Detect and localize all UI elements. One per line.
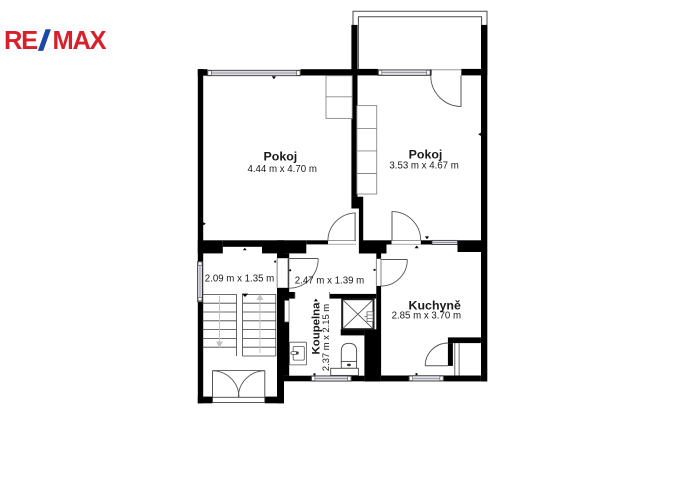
svg-text:Pokoj: Pokoj (264, 150, 298, 164)
svg-text:2.47 m x 1.39 m: 2.47 m x 1.39 m (295, 276, 364, 287)
svg-text:4.44 m x 4.70 m: 4.44 m x 4.70 m (247, 164, 316, 175)
svg-text:Pokoj: Pokoj (409, 147, 443, 161)
svg-text:2.85 m x 3.70 m: 2.85 m x 3.70 m (392, 311, 461, 322)
svg-text:MAX: MAX (53, 27, 107, 55)
svg-text:2.09 m x 1.35 m: 2.09 m x 1.35 m (205, 274, 274, 285)
svg-text:2.37 m x 2.15 m: 2.37 m x 2.15 m (320, 304, 331, 371)
svg-text:3.53 m x 4.67 m: 3.53 m x 4.67 m (389, 160, 458, 171)
svg-text:RE: RE (4, 27, 38, 55)
